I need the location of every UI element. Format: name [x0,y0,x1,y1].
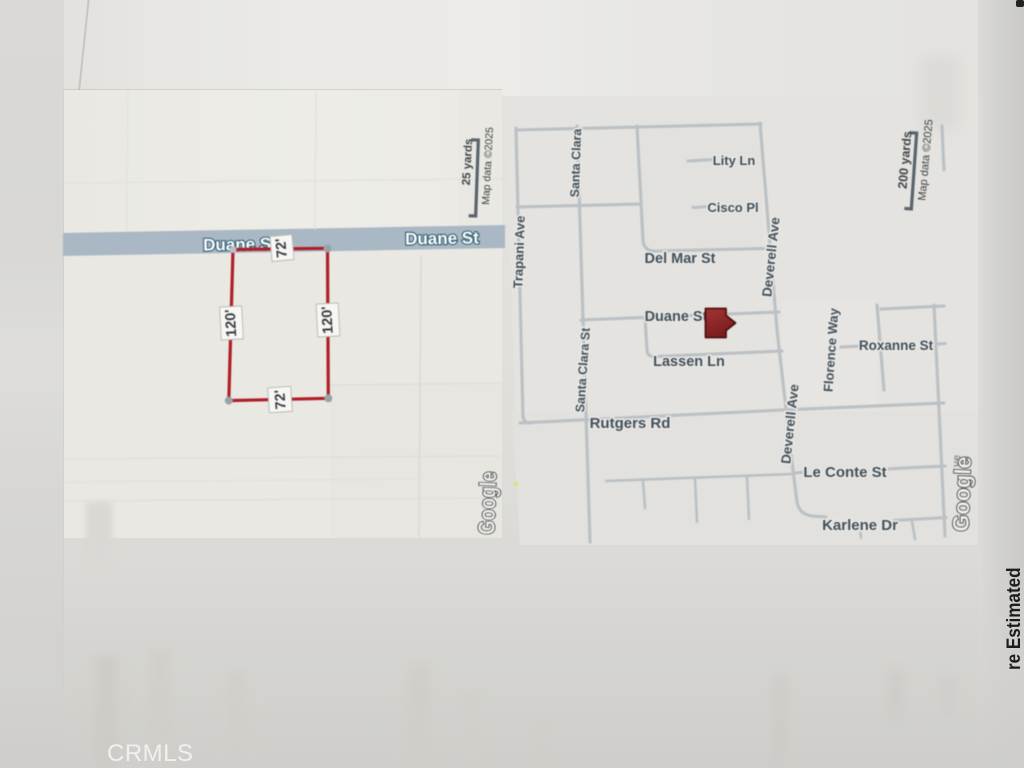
svg-text:Trapani Ave: Trapani Ave [510,215,528,288]
svg-text:Roxanne St: Roxanne St [859,338,934,353]
svg-text:72': 72' [273,238,291,259]
svg-text:Google: Google [474,471,502,535]
svg-text:120': 120' [223,309,240,337]
svg-text:Florence Way: Florence Way [821,307,842,393]
svg-text:Karlene Dr: Karlene Dr [822,517,898,534]
svg-text:Lity Ln: Lity Ln [713,153,756,168]
svg-text:Lassen Ln: Lassen Ln [653,354,725,370]
svg-text:Rutgers Rd: Rutgers Rd [590,415,671,432]
svg-text:Deverell Ave: Deverell Ave [759,216,782,298]
svg-text:72': 72' [272,389,289,410]
svg-text:25 yards: 25 yards [461,138,475,185]
svg-text:Duane St: Duane St [405,228,479,248]
svg-text:Cisco Pl: Cisco Pl [707,200,758,215]
svg-text:Duane St: Duane St [203,234,277,254]
svg-text:Deverell Ave: Deverell Ave [778,383,801,465]
svg-text:120': 120' [319,306,336,334]
svg-text:Map data ©2025: Map data ©2025 [916,119,935,201]
svg-text:200 yards: 200 yards [896,131,915,190]
svg-text:Le Conte St: Le Conte St [803,464,886,481]
svg-text:Map data ©2025: Map data ©2025 [480,127,496,205]
svg-text:Del Mar St: Del Mar St [645,251,716,267]
svg-text:Google: Google [948,456,976,532]
svg-text:Santa Clara St: Santa Clara St [573,326,593,412]
svg-text:Duane St: Duane St [645,309,708,325]
svg-text:Santa Clara: Santa Clara [568,127,584,197]
